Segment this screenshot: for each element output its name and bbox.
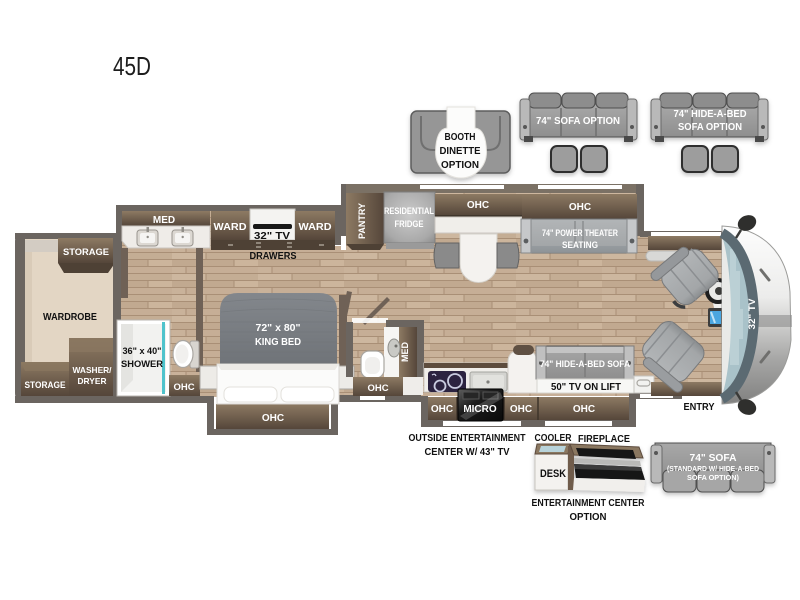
svg-text:SOFA OPTION): SOFA OPTION) [687, 473, 739, 482]
svg-text:OHC: OHC [510, 404, 532, 415]
svg-text:74" SOFA OPTION: 74" SOFA OPTION [536, 116, 620, 127]
svg-text:BOOTH: BOOTH [445, 132, 476, 143]
svg-text:MED: MED [400, 342, 410, 363]
svg-text:WARDROBE: WARDROBE [43, 311, 97, 323]
svg-text:FRIDGE: FRIDGE [395, 219, 424, 229]
svg-text:WARD: WARD [299, 222, 332, 233]
svg-text:(STANDARD W/ HIDE-A-BED: (STANDARD W/ HIDE-A-BED [667, 464, 760, 473]
svg-text:ENTRY: ENTRY [684, 401, 715, 413]
svg-text:OPTION: OPTION [570, 511, 607, 523]
svg-text:74" HIDE-A-BED: 74" HIDE-A-BED [674, 109, 747, 120]
svg-text:74" HIDE-A-BED SOFA: 74" HIDE-A-BED SOFA [540, 359, 630, 370]
svg-text:OHC: OHC [467, 200, 489, 211]
svg-text:WARD: WARD [214, 222, 247, 233]
svg-text:WASHER/: WASHER/ [73, 365, 113, 375]
svg-text:OUTSIDE ENTERTAINMENT: OUTSIDE ENTERTAINMENT [409, 432, 526, 444]
svg-text:COOLER: COOLER [535, 432, 572, 444]
svg-text:SHOWER: SHOWER [121, 359, 163, 370]
svg-text:MICRO: MICRO [463, 404, 497, 415]
svg-text:DRAWERS: DRAWERS [250, 251, 297, 262]
svg-text:SEATING: SEATING [562, 240, 598, 251]
svg-text:DINETTE: DINETTE [440, 146, 481, 157]
svg-text:STORAGE: STORAGE [25, 380, 66, 390]
svg-text:MED: MED [153, 215, 175, 226]
svg-text:45D: 45D [113, 51, 151, 81]
svg-text:OHC: OHC [573, 404, 595, 415]
svg-text:ENTERTAINMENT CENTER: ENTERTAINMENT CENTER [532, 497, 645, 509]
svg-text:STORAGE: STORAGE [63, 247, 109, 258]
svg-text:SOFA OPTION: SOFA OPTION [678, 122, 742, 133]
svg-text:74" POWER THEATER: 74" POWER THEATER [542, 228, 618, 239]
svg-text:36" x 40": 36" x 40" [123, 346, 162, 357]
svg-text:OHC: OHC [431, 404, 453, 415]
svg-text:DRYER: DRYER [78, 376, 107, 386]
svg-text:KING BED: KING BED [255, 336, 301, 348]
svg-text:CENTER W/ 43" TV: CENTER W/ 43" TV [425, 446, 510, 458]
svg-text:PANTRY: PANTRY [357, 202, 368, 239]
svg-text:74" SOFA: 74" SOFA [690, 452, 737, 464]
svg-text:RESIDENTIAL: RESIDENTIAL [384, 206, 434, 216]
svg-text:OPTION: OPTION [441, 160, 479, 171]
svg-text:32" TV: 32" TV [747, 299, 757, 330]
svg-text:OHC: OHC [262, 413, 284, 424]
svg-text:FIREPLACE: FIREPLACE [578, 433, 630, 445]
svg-text:72" x 80": 72" x 80" [256, 322, 301, 334]
svg-text:OHC: OHC [173, 382, 194, 393]
svg-text:50" TV ON LIFT: 50" TV ON LIFT [551, 381, 622, 393]
svg-text:OHC: OHC [569, 202, 591, 213]
svg-text:DESK: DESK [540, 468, 566, 480]
svg-text:OHC: OHC [367, 383, 388, 394]
